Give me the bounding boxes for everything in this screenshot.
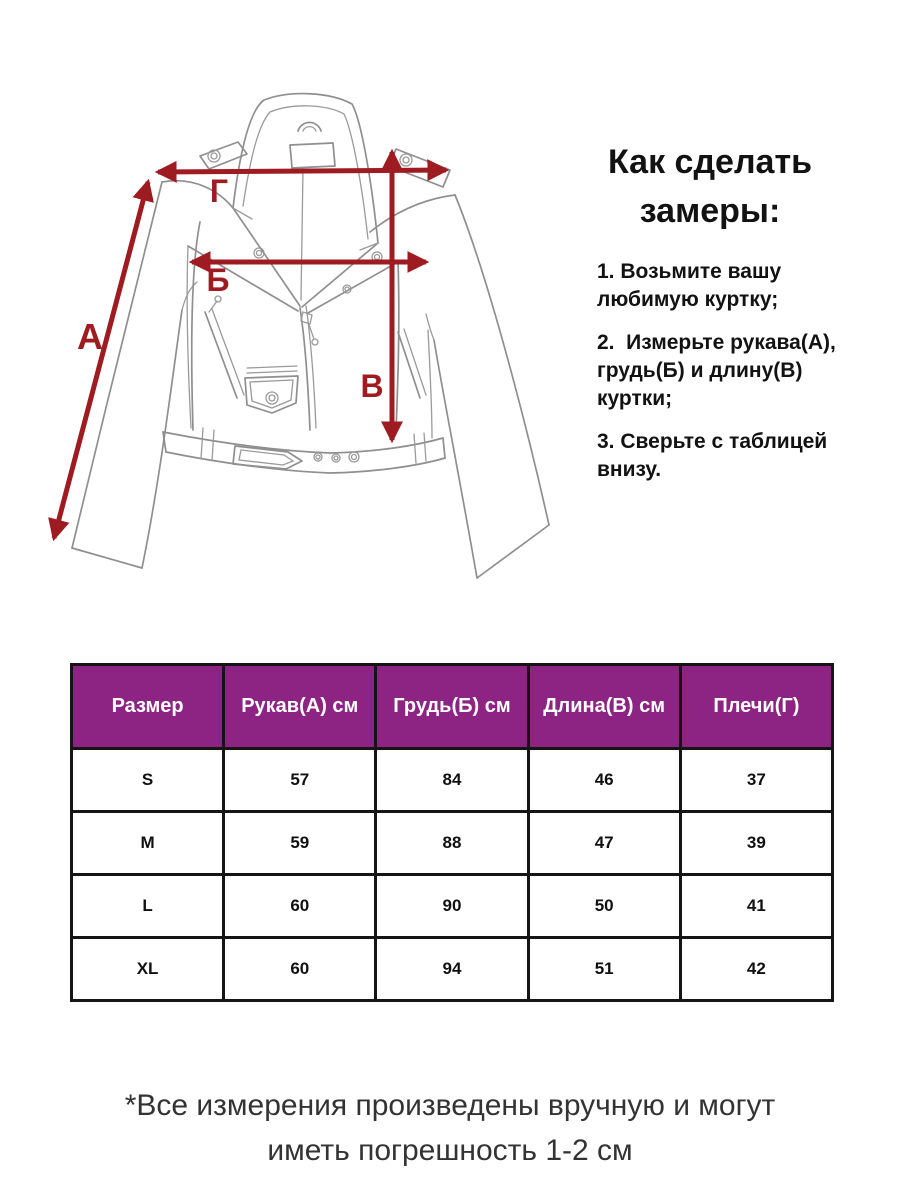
shoulders-cell: 41	[680, 875, 832, 938]
shoulders-cell: 39	[680, 812, 832, 875]
col-header-sleeve: Рукав(А) см	[224, 665, 376, 749]
sleeve-cell: 60	[224, 938, 376, 1001]
shoulders-cell: 42	[680, 938, 832, 1001]
col-header-shoulders: Плечи(Г)	[680, 665, 832, 749]
shoulders-arrow-g	[158, 170, 446, 172]
size-chart-infographic: А Б В Г Как сделать замеры: 1. Возьмите …	[0, 0, 900, 1200]
howto-block: Как сделать замеры: 1. Возьмите вашу люб…	[545, 138, 875, 499]
shoulders-cell: 37	[680, 749, 832, 812]
label-chest-b: Б	[207, 262, 230, 298]
measurement-arrows	[54, 152, 446, 538]
label-length-v: В	[360, 368, 383, 404]
jacket-measurement-diagram: А Б В Г	[0, 0, 580, 620]
size-table: Размер Рукав(А) см Грудь(Б) см Длина(В) …	[70, 663, 834, 1002]
sleeve-cell: 57	[224, 749, 376, 812]
jacket-line-art	[72, 94, 549, 578]
chest-cell: 90	[376, 875, 528, 938]
table-row: XL 60 94 51 42	[72, 938, 833, 1001]
chest-cell: 88	[376, 812, 528, 875]
footnote: *Все измерения произведены вручную и мог…	[0, 1083, 900, 1173]
sleeve-arrow-a	[54, 182, 148, 538]
length-cell: 46	[528, 749, 680, 812]
howto-step-2: 2. Измерьте рукава(А), грудь(Б) и длину(…	[597, 329, 875, 413]
size-cell: L	[72, 875, 224, 938]
howto-steps: 1. Возьмите вашу любимую куртку; 2. Изме…	[545, 258, 875, 484]
footnote-text: *Все измерения произведены вручную и мог…	[100, 1083, 800, 1173]
col-header-chest: Грудь(Б) см	[376, 665, 528, 749]
measurement-labels: А Б В Г	[77, 173, 384, 404]
chest-cell: 84	[376, 749, 528, 812]
label-shoulders-g: Г	[210, 173, 228, 209]
size-table-header-row: Размер Рукав(А) см Грудь(Б) см Длина(В) …	[72, 665, 833, 749]
table-row: M 59 88 47 39	[72, 812, 833, 875]
howto-step-3: 3. Сверьте с таблицей внизу.	[597, 428, 875, 484]
table-row: S 57 84 46 37	[72, 749, 833, 812]
size-cell: M	[72, 812, 224, 875]
table-row: L 60 90 50 41	[72, 875, 833, 938]
howto-step-1: 1. Возьмите вашу любимую куртку;	[597, 258, 875, 314]
size-cell: S	[72, 749, 224, 812]
jacket-sketch-svg: А Б В Г	[0, 0, 580, 620]
size-cell: XL	[72, 938, 224, 1001]
sleeve-cell: 60	[224, 875, 376, 938]
sleeve-cell: 59	[224, 812, 376, 875]
howto-title: Как сделать замеры:	[600, 138, 820, 236]
length-cell: 50	[528, 875, 680, 938]
length-cell: 51	[528, 938, 680, 1001]
length-cell: 47	[528, 812, 680, 875]
col-header-length: Длина(В) см	[528, 665, 680, 749]
chest-cell: 94	[376, 938, 528, 1001]
label-sleeve-a: А	[77, 316, 103, 357]
col-header-size: Размер	[72, 665, 224, 749]
